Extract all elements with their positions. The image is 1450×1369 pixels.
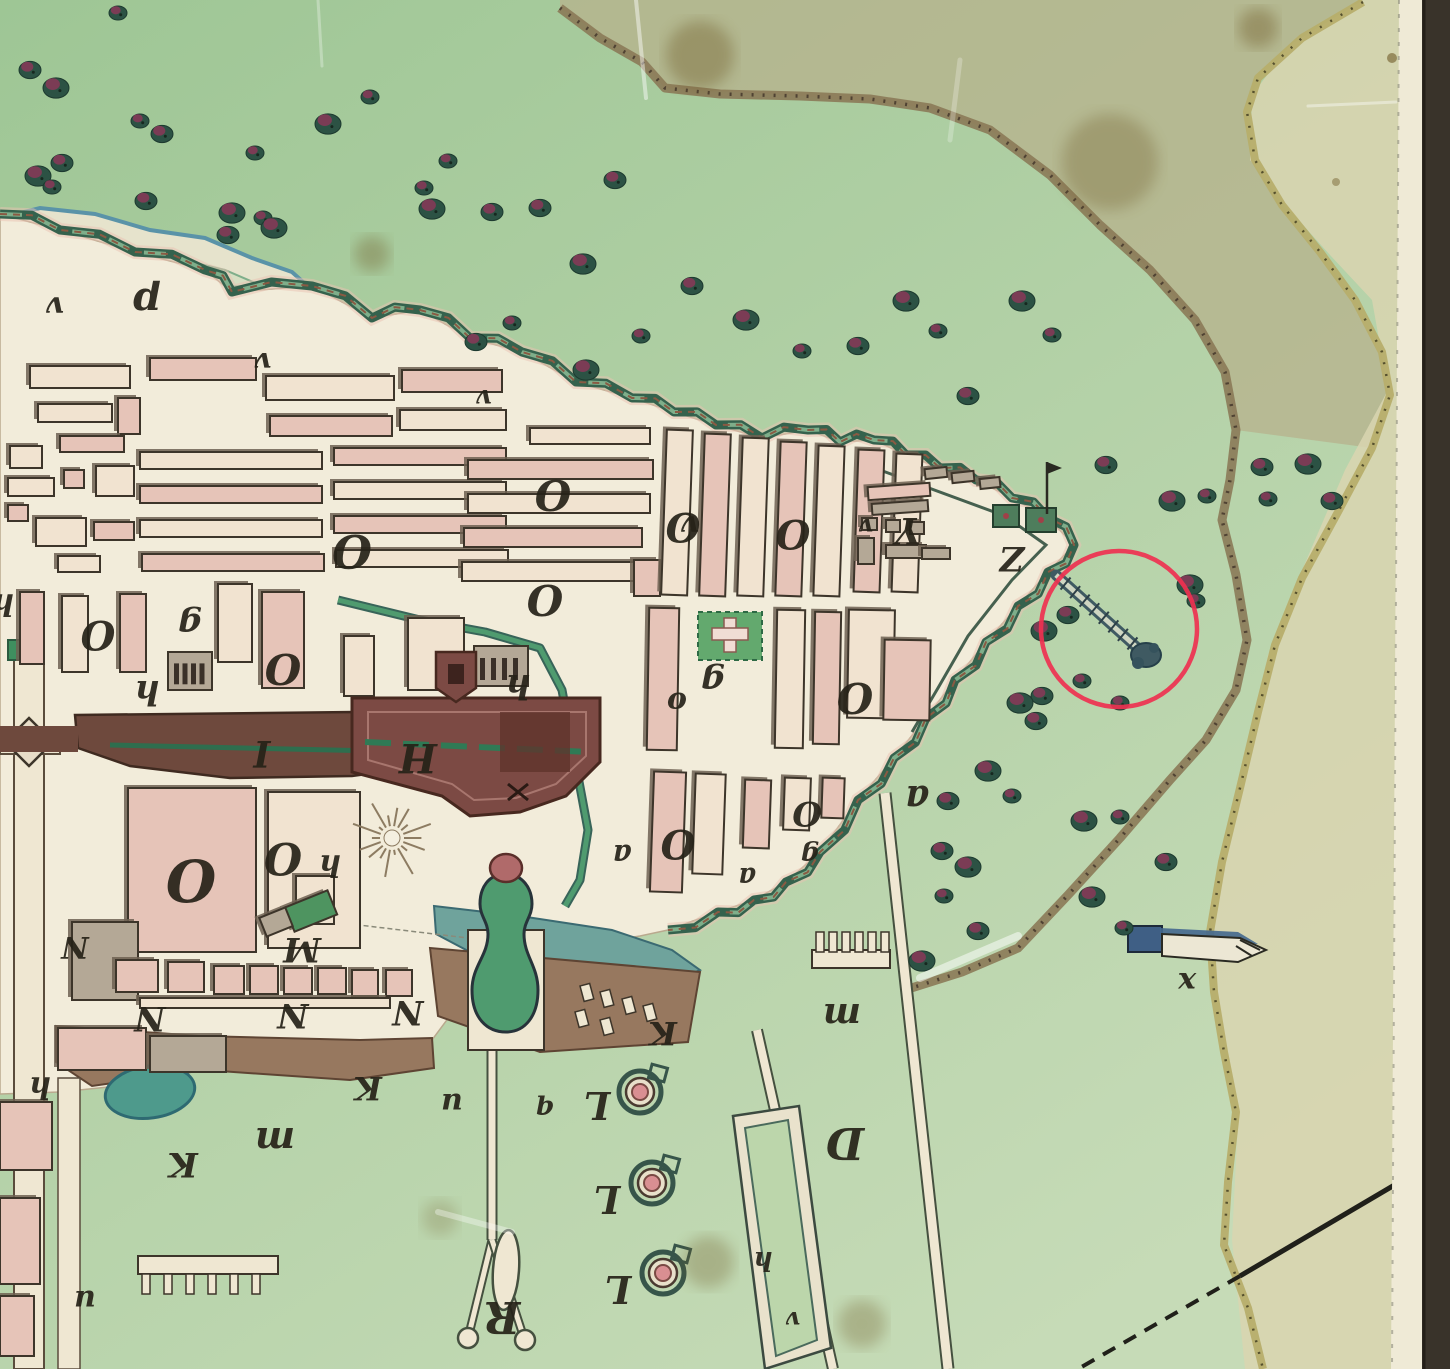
map-letter-K: K <box>167 1144 199 1184</box>
map-letter-g: g <box>801 840 819 870</box>
building <box>8 505 28 521</box>
comb-jetty-south-tooth <box>142 1274 150 1294</box>
comb-jetty-south-tooth <box>186 1274 194 1294</box>
tree-icon <box>261 218 287 238</box>
paper-stain <box>666 21 734 89</box>
building <box>140 520 322 537</box>
church-cross-h <box>712 628 748 640</box>
tree-icon <box>361 90 379 104</box>
map-letter-x: x <box>1177 965 1197 1000</box>
tree-icon <box>19 61 41 78</box>
fort-z-dot <box>1003 513 1009 519</box>
building <box>118 398 140 434</box>
paper-stain <box>682 1236 734 1288</box>
paper-stain <box>1238 8 1278 48</box>
building <box>821 778 844 819</box>
map-letter-K: K <box>648 1014 678 1052</box>
tree-icon <box>1095 456 1117 473</box>
portico-column <box>174 663 179 684</box>
map-letter-a: a <box>612 837 631 872</box>
portico-column <box>480 658 485 680</box>
tree-icon <box>1043 328 1061 342</box>
map-letter-O: O <box>165 846 216 914</box>
map-letter-p: p <box>133 279 161 326</box>
map-letter-q: q <box>536 1094 554 1124</box>
map-letter-v: v <box>254 346 271 379</box>
map-letter-O: O <box>836 673 873 722</box>
map-letter-L: L <box>584 1083 612 1128</box>
building <box>142 554 324 571</box>
map-letter-D: D <box>826 1117 866 1168</box>
map-letter-O: O <box>534 470 571 519</box>
tree-icon <box>135 192 157 209</box>
tree-icon <box>419 199 445 219</box>
building <box>0 1198 40 1284</box>
tree-icon <box>937 792 959 809</box>
building <box>94 522 134 540</box>
tree-icon <box>1079 887 1105 907</box>
tree-icon <box>1111 810 1129 824</box>
building <box>140 998 390 1008</box>
building <box>64 470 84 488</box>
map-letter-g: g <box>178 605 202 645</box>
building <box>464 528 642 547</box>
tree-icon <box>1155 853 1177 870</box>
building <box>36 518 86 546</box>
building <box>0 1296 34 1356</box>
tree-icon <box>1003 789 1021 803</box>
comb-jetty-south-tooth <box>208 1274 216 1294</box>
building <box>150 358 256 380</box>
tree-icon <box>43 78 69 98</box>
building <box>743 780 771 849</box>
portico-column <box>200 663 205 684</box>
building <box>250 966 278 994</box>
gate-tower-core <box>448 664 464 684</box>
tree-icon <box>573 360 599 380</box>
tree-icon <box>481 203 503 220</box>
tree-icon <box>1321 492 1343 509</box>
tree-icon <box>847 337 869 354</box>
map-letter-u: u <box>441 1086 463 1121</box>
map-letter-L: L <box>605 1267 633 1312</box>
basin-dome <box>490 854 522 882</box>
map-letter-h: h <box>319 847 341 882</box>
building <box>270 416 392 436</box>
building <box>140 486 322 503</box>
tree-icon <box>529 199 551 216</box>
tree-icon <box>733 310 759 330</box>
map-letter-O: O <box>775 510 810 557</box>
comb-jetty-east-tooth <box>881 932 889 952</box>
tree-icon <box>1159 491 1185 511</box>
portico-column <box>191 663 196 684</box>
map-letter-M: M <box>282 929 322 969</box>
building <box>8 478 54 496</box>
tree-icon <box>1025 712 1047 729</box>
building <box>150 1036 226 1072</box>
building <box>925 467 948 479</box>
map-letter-O: O <box>264 644 301 693</box>
comb-jetty-east-tooth <box>816 932 824 952</box>
map-letter-O: O <box>526 575 563 624</box>
comb-jetty-south-tooth <box>252 1274 260 1294</box>
portico-column <box>491 658 496 680</box>
building <box>530 428 650 444</box>
tree-icon <box>957 387 979 404</box>
comb-jetty-south-tooth <box>230 1274 238 1294</box>
comb-jetty-east-tooth <box>842 932 850 952</box>
map-letter-g: g <box>701 662 725 702</box>
tree-icon <box>415 181 433 195</box>
map-letter-o: o <box>667 685 687 720</box>
table-background-edge <box>1422 0 1450 1369</box>
map-letter-h: h <box>754 1245 773 1275</box>
tree-icon <box>315 114 341 134</box>
fort-z-dot <box>1038 517 1044 523</box>
building <box>218 584 252 662</box>
building <box>813 446 844 597</box>
tree-icon <box>219 203 245 223</box>
map-letter-Y: Y <box>892 509 921 551</box>
map-letter-N: N <box>60 929 90 964</box>
map-letter-h: h <box>0 586 14 621</box>
sw-street <box>58 1078 80 1369</box>
map-letter-Z: Z <box>998 538 1026 578</box>
comb-jetty-east-tooth <box>829 932 837 952</box>
map-letter-K: K <box>353 1069 383 1107</box>
building <box>116 960 158 992</box>
tree-icon <box>151 125 173 142</box>
building <box>30 366 130 388</box>
map-canvas: vpvvvvOOOOOOOghhhgoOOgOaaaOhOMNNNNHIYZKK… <box>0 0 1450 1369</box>
tree-icon <box>632 329 650 343</box>
tree-icon <box>1251 458 1273 475</box>
tree-icon <box>570 254 596 274</box>
building <box>58 556 100 572</box>
tree-icon <box>503 316 521 330</box>
tree-icon <box>967 922 989 939</box>
tree-icon <box>893 291 919 311</box>
building <box>266 376 394 400</box>
map-letter-v: v <box>46 289 64 324</box>
building <box>952 471 975 483</box>
building <box>922 548 950 559</box>
tree-icon <box>1031 687 1053 704</box>
map-letter-O: O <box>792 793 822 833</box>
building <box>634 560 660 596</box>
tree-icon <box>1057 606 1079 623</box>
map-letter-a: a <box>738 861 756 894</box>
map-letter-h: h <box>29 1069 51 1104</box>
comb-jetty-south-tooth <box>164 1274 172 1294</box>
map-letter-v: v <box>858 513 873 542</box>
map-letter-N: N <box>391 992 425 1032</box>
building <box>140 452 322 469</box>
map-letter-O: O <box>660 820 695 867</box>
map-letter-I: I <box>252 732 271 774</box>
tree-icon <box>1007 693 1033 713</box>
building <box>775 610 805 748</box>
tree-icon <box>131 114 149 128</box>
paper-stain <box>838 1300 886 1348</box>
map-letter-N: N <box>276 995 310 1035</box>
building <box>883 640 930 721</box>
building <box>96 466 134 496</box>
paper-stain <box>1387 53 1397 63</box>
citadel-keep <box>500 712 570 772</box>
building <box>699 434 731 597</box>
tree-icon <box>931 842 953 859</box>
paper-stain <box>354 236 390 272</box>
building <box>38 404 112 422</box>
tree-icon <box>793 344 811 358</box>
tree-icon <box>681 277 703 294</box>
comb-jetty-east-tooth <box>868 932 876 952</box>
building <box>60 436 124 452</box>
tree-icon <box>1198 489 1216 503</box>
map-letter-N: N <box>133 998 167 1038</box>
tree-icon <box>935 889 953 903</box>
building <box>344 636 374 696</box>
map-letter-m: m <box>823 995 861 1037</box>
map-letter-m: m <box>255 1119 295 1164</box>
building <box>20 592 44 664</box>
map-letter-R: R <box>484 1291 523 1342</box>
map-letter-O: O <box>80 611 115 658</box>
building <box>214 966 244 994</box>
tree-icon <box>1295 454 1321 474</box>
tree-icon <box>1031 621 1057 641</box>
map-letter-h: h <box>135 672 160 712</box>
map-letter-O: O <box>264 832 302 883</box>
map-letter-O: O <box>665 503 700 550</box>
map-letter-v: v <box>476 383 492 413</box>
map-letter-a: a <box>905 777 930 822</box>
tree-icon <box>955 857 981 877</box>
tree-icon <box>1115 921 1133 935</box>
tree-icon <box>246 146 264 160</box>
map-letter-v: v <box>785 1306 800 1335</box>
building <box>980 477 1001 489</box>
map-screenshot: vpvvvvOOOOOOOghhhgoOOgOaaaOhOMNNNNHIYZKK… <box>0 0 1450 1369</box>
tree-icon <box>51 154 73 171</box>
tree-icon <box>439 154 457 168</box>
map-letter-O: O <box>332 524 372 578</box>
building <box>692 774 725 875</box>
tree-icon <box>1071 811 1097 831</box>
tree-icon <box>929 324 947 338</box>
building <box>284 968 312 994</box>
building <box>120 594 146 672</box>
causeway-head-a <box>458 1328 478 1348</box>
building <box>168 962 204 992</box>
building <box>10 446 42 468</box>
tree-icon <box>975 761 1001 781</box>
portico-column <box>183 663 188 684</box>
comb-jetty-south <box>138 1256 278 1274</box>
tree-icon <box>1009 291 1035 311</box>
tree-icon <box>109 6 127 20</box>
building <box>318 968 346 994</box>
building <box>58 1028 146 1070</box>
moat-west <box>0 726 78 752</box>
tree-icon <box>465 333 487 350</box>
map-letter-H: H <box>398 734 438 781</box>
paper-stain <box>1062 114 1158 210</box>
tree-icon <box>909 951 935 971</box>
tree-icon <box>43 180 61 194</box>
tree-icon <box>1073 674 1091 688</box>
tree-icon <box>217 226 239 243</box>
building <box>352 970 378 996</box>
building <box>647 608 679 751</box>
building <box>0 1102 52 1170</box>
map-letter-h: h <box>506 666 531 706</box>
tree-icon <box>1259 492 1277 506</box>
comb-jetty-east-tooth <box>855 932 863 952</box>
building <box>737 438 768 597</box>
paper-stain <box>1332 178 1340 186</box>
tree-icon <box>604 171 626 188</box>
map-letter-L: L <box>594 1177 622 1222</box>
map-letter-u: u <box>74 1283 96 1318</box>
